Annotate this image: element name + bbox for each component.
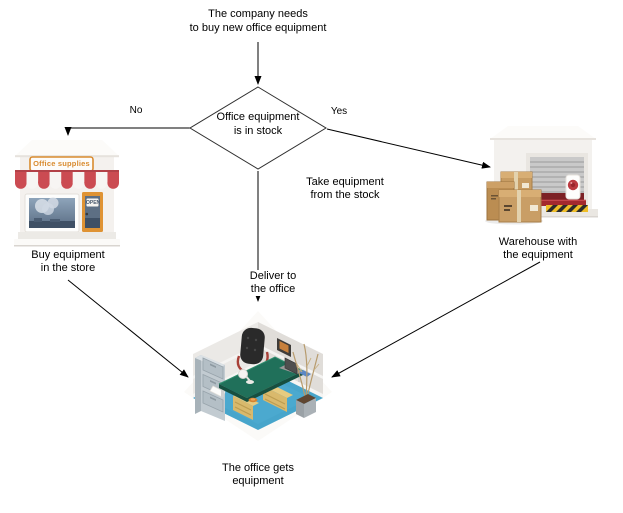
store-open-sign: OPEN — [86, 199, 99, 207]
start-label-line1: The company needs — [158, 7, 358, 21]
branch-yes-label: Yes — [324, 106, 354, 118]
office-caption: The office gets equipment — [194, 462, 322, 488]
office-icon — [181, 308, 335, 444]
warehouse-caption-line2: the equipment — [484, 249, 592, 262]
store-window — [25, 194, 79, 232]
decision-label: Office equipment is in stock — [198, 110, 318, 138]
store-path-label-line2: in the store — [16, 262, 120, 275]
warehouse-path-label: Take equipment from the stock — [292, 176, 398, 202]
store-path-label-line1: Buy equipment — [16, 249, 120, 262]
connector-warehouse-to-office — [332, 262, 540, 377]
office-caption-line2: equipment — [194, 475, 322, 488]
store-path-label: Buy equipment in the store — [16, 249, 120, 275]
start-label-line2: to buy new office equipment — [158, 21, 358, 35]
store-awning — [15, 170, 119, 189]
decision-label-line2: is in stock — [198, 124, 318, 138]
store-sign-label: Office supplies — [30, 157, 93, 171]
flowchart-canvas: The company needs to buy new office equi… — [0, 0, 623, 513]
warehouse-icon — [484, 123, 602, 225]
warehouse-path-label-line2: from the stock — [292, 189, 398, 202]
connector-decision-to-store — [68, 128, 190, 135]
warehouse-caption: Warehouse with the equipment — [484, 236, 592, 262]
connector-decision-to-warehouse — [327, 129, 490, 167]
deliver-path-label-line2: the office — [224, 283, 322, 296]
connector-store-to-office — [68, 280, 188, 377]
office-caption-line1: The office gets — [194, 462, 322, 475]
store-door — [82, 192, 103, 232]
deliver-path-label: Deliver to the office — [224, 270, 322, 296]
warehouse-hazard-stripe — [546, 205, 588, 212]
branch-no-label: No — [122, 105, 150, 117]
warehouse-caption-line1: Warehouse with — [484, 236, 592, 249]
warehouse-path-label-line1: Take equipment — [292, 176, 398, 189]
deliver-path-label-line1: Deliver to — [224, 270, 322, 283]
store-icon — [12, 136, 122, 248]
store-base — [14, 232, 120, 247]
decision-label-line1: Office equipment — [198, 110, 318, 124]
warehouse-button — [566, 175, 580, 199]
start-label: The company needs to buy new office equi… — [158, 7, 358, 35]
